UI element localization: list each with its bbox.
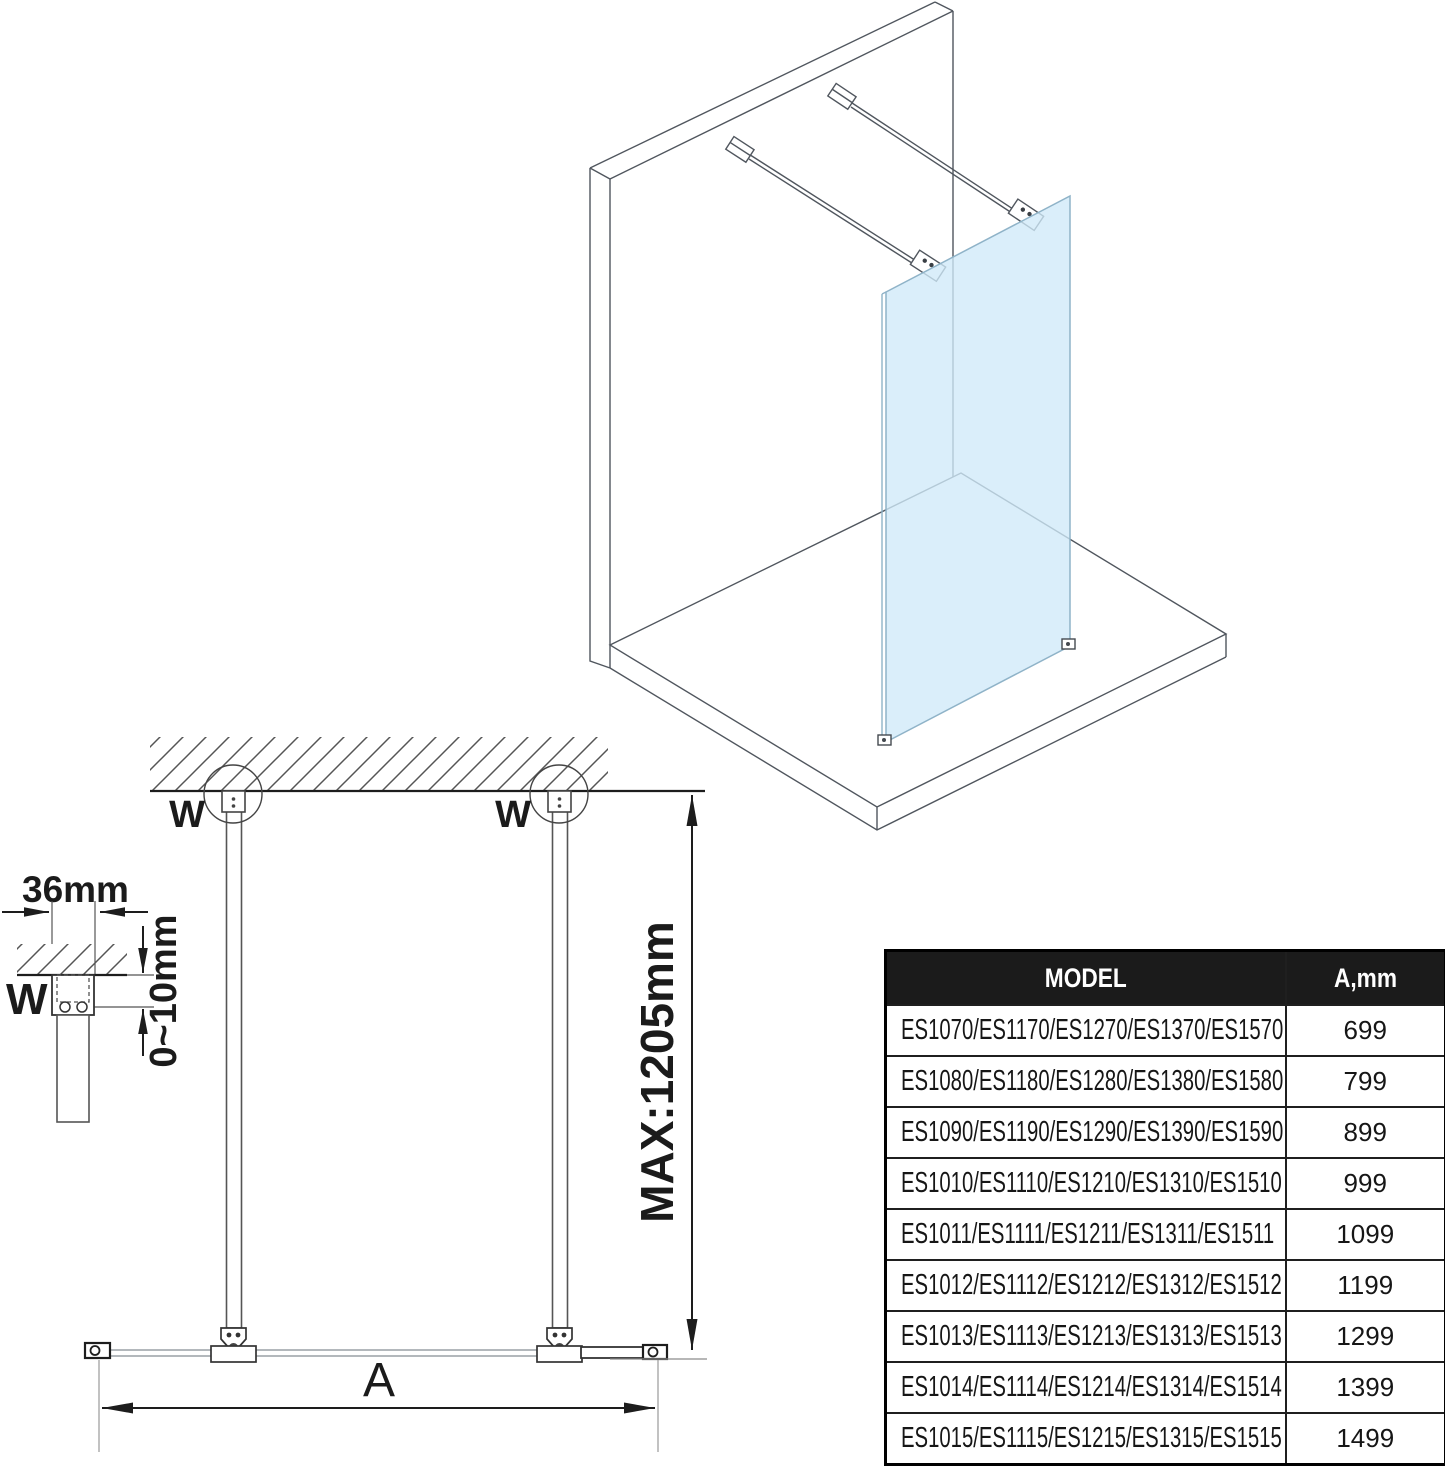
table-row: ES1013/ES1113/ES1213/ES1313/ES1513 1299 bbox=[886, 1311, 1445, 1362]
plan-view: W W bbox=[85, 737, 707, 1452]
a-mm-value: 1499 bbox=[1286, 1413, 1445, 1465]
detail-view-w: 36mm W 0~10mm bbox=[2, 869, 185, 1122]
a-mm-value: 1399 bbox=[1286, 1362, 1445, 1413]
table-row: ES1012/ES1112/ES1212/ES1312/ES1512 1199 bbox=[886, 1260, 1445, 1311]
iso-wall-bracket-lower bbox=[726, 137, 754, 163]
model-codes: ES1010/ES1110/ES1210/ES1310/ES1510 bbox=[901, 1167, 1282, 1200]
model-codes: ES1014/ES1114/ES1214/ES1314/ES1514 bbox=[901, 1371, 1282, 1404]
iso-support-bar-lower bbox=[726, 137, 946, 282]
a-mm-value: 899 bbox=[1286, 1107, 1445, 1158]
detail-wall-bracket bbox=[52, 975, 94, 1015]
a-mm-value: 1199 bbox=[1286, 1260, 1445, 1311]
model-column-header: MODEL bbox=[886, 951, 1286, 1006]
plan-glass-clamp-right bbox=[537, 1328, 582, 1362]
dimension-0-10mm: 0~10mm bbox=[143, 914, 185, 1067]
detail-36mm-label: 36mm bbox=[22, 869, 129, 910]
plan-wall-bracket-right bbox=[548, 791, 571, 812]
model-codes: ES1013/ES1113/ES1213/ES1313/ES1513 bbox=[901, 1320, 1282, 1353]
model-codes: ES1070/ES1170/ES1270/ES1370/ES1570 bbox=[901, 1014, 1283, 1047]
a-mm-value: 999 bbox=[1286, 1158, 1445, 1209]
dimension-max-1205: MAX:1205mm bbox=[610, 795, 707, 1359]
table-row: ES1070/ES1170/ES1270/ES1370/ES1570 699 bbox=[886, 1005, 1445, 1056]
iso-glass-foot-left bbox=[878, 735, 891, 745]
table-header-row: MODEL A,mm bbox=[886, 951, 1445, 1006]
plan-end-profile-right bbox=[581, 1345, 667, 1359]
table-row: ES1015/ES1115/ES1215/ES1315/ES1515 1499 bbox=[886, 1413, 1445, 1465]
plan-w-label-left: W bbox=[169, 794, 205, 836]
table-row: ES1010/ES1110/ES1210/ES1310/ES1510 999 bbox=[886, 1158, 1445, 1209]
model-codes: ES1080/ES1180/ES1280/ES1380/ES1580 bbox=[901, 1065, 1283, 1098]
detail-wall-hatch bbox=[17, 944, 127, 975]
model-codes: ES1012/ES1112/ES1212/ES1312/ES1512 bbox=[901, 1269, 1282, 1302]
detail-w-label: W bbox=[6, 975, 48, 1024]
plan-w-label-right: W bbox=[495, 794, 531, 836]
a-mm-value: 699 bbox=[1286, 1005, 1445, 1056]
plan-bar-left bbox=[227, 791, 242, 1328]
iso-wall-bracket-upper bbox=[828, 83, 856, 109]
a-mm-value: 799 bbox=[1286, 1056, 1445, 1107]
plan-wall-bracket-left bbox=[222, 791, 245, 812]
plan-wall-hatch bbox=[150, 737, 608, 791]
plan-bar-right bbox=[553, 791, 568, 1328]
model-codes: ES1011/ES1111/ES1211/ES1311/ES1511 bbox=[901, 1218, 1274, 1251]
iso-support-bar-upper bbox=[828, 83, 1044, 230]
table-row: ES1090/ES1190/ES1290/ES1390/ES1590 899 bbox=[886, 1107, 1445, 1158]
technical-drawing-page: W W bbox=[0, 0, 1445, 1452]
plan-wall-profile-left bbox=[85, 1343, 110, 1358]
a-mm-value: 1099 bbox=[1286, 1209, 1445, 1260]
isometric-view bbox=[590, 2, 1226, 830]
max-dimension-label: MAX:1205mm bbox=[631, 921, 683, 1223]
model-codes: ES1090/ES1190/ES1290/ES1390/ES1590 bbox=[901, 1116, 1283, 1149]
model-size-table: MODEL A,mm ES1070/ES1170/ES1270/ES1370/E… bbox=[884, 949, 1445, 1466]
plan-glass-clamp-left bbox=[211, 1328, 256, 1362]
detail-0-10mm-label: 0~10mm bbox=[143, 914, 185, 1067]
iso-glass-panel bbox=[882, 196, 1070, 744]
dimension-a: A bbox=[99, 1354, 658, 1452]
a-mm-value: 1299 bbox=[1286, 1311, 1445, 1362]
detail-support-bar bbox=[57, 1015, 89, 1122]
table-row: ES1014/ES1114/ES1214/ES1314/ES1514 1399 bbox=[886, 1362, 1445, 1413]
a-mm-column-header: A,mm bbox=[1286, 951, 1445, 1006]
model-codes: ES1015/ES1115/ES1215/ES1315/ES1515 bbox=[901, 1422, 1282, 1455]
a-dimension-label: A bbox=[363, 1354, 395, 1407]
table-row: ES1080/ES1180/ES1280/ES1380/ES1580 799 bbox=[886, 1056, 1445, 1107]
table-row: ES1011/ES1111/ES1211/ES1311/ES1511 1099 bbox=[886, 1209, 1445, 1260]
iso-glass-foot-right bbox=[1062, 639, 1075, 649]
